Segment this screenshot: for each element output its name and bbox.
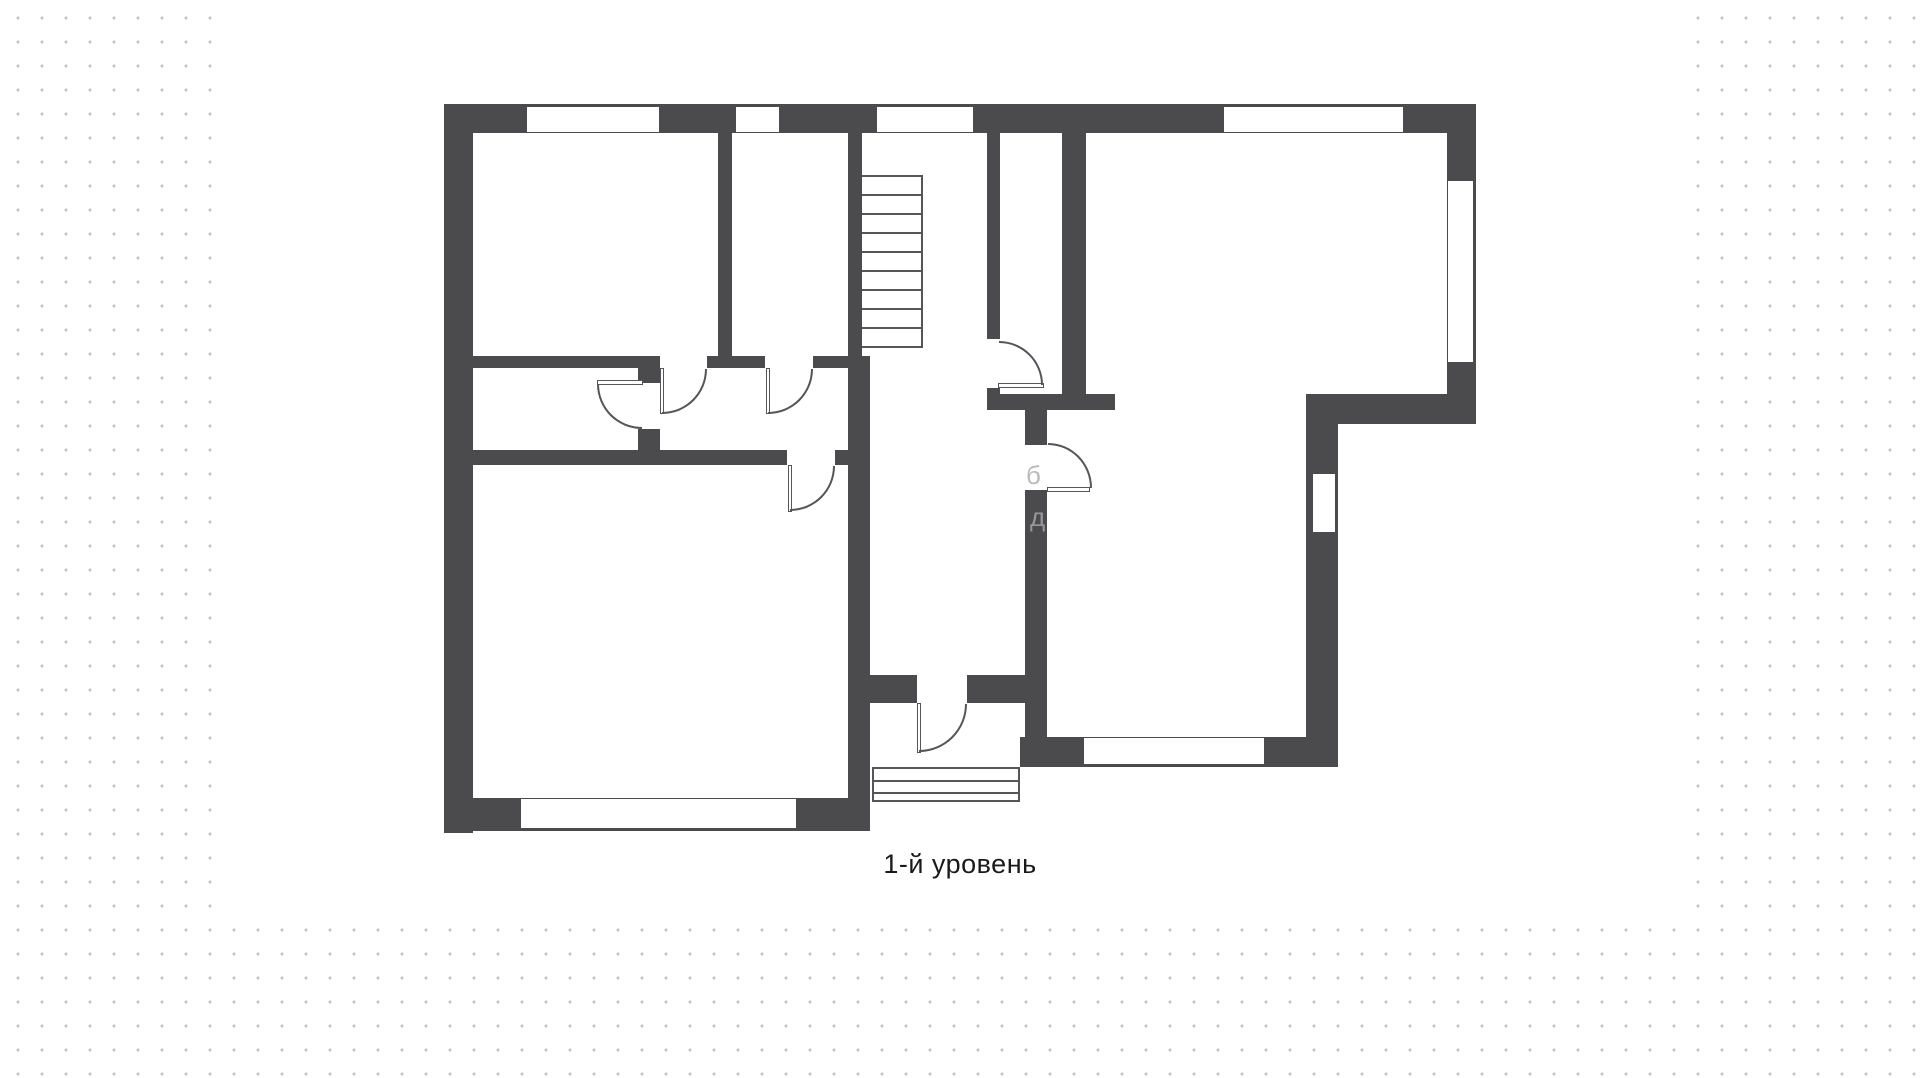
window <box>876 104 974 133</box>
wall <box>835 450 870 465</box>
wall <box>1062 133 1086 394</box>
window <box>520 798 797 831</box>
watermark-fragment: б <box>1026 462 1041 488</box>
stair-tread <box>862 270 923 272</box>
wall <box>870 675 917 703</box>
window <box>1083 737 1265 767</box>
door-swing-arc <box>919 704 967 752</box>
door-swing-arc <box>1048 443 1092 488</box>
stair-tread <box>862 251 923 253</box>
wall <box>848 133 862 356</box>
stair-tread <box>862 327 923 329</box>
entrance-step-line <box>874 780 1018 782</box>
window <box>526 104 660 133</box>
watermark-fragment: д <box>1030 504 1045 530</box>
wall <box>1025 410 1047 445</box>
wall <box>987 133 1000 339</box>
stair-tread <box>862 232 923 234</box>
wall <box>1306 394 1476 424</box>
wall <box>638 429 660 450</box>
stair-tread <box>862 194 923 196</box>
wall <box>718 133 732 356</box>
stair-stringer <box>921 175 923 348</box>
wall <box>473 356 638 368</box>
floor-caption: 1-й уровень <box>820 849 1100 880</box>
wall <box>638 356 660 383</box>
entrance-step-line <box>874 792 1018 794</box>
wall <box>848 356 870 798</box>
wall <box>444 104 473 833</box>
wall <box>987 394 1115 410</box>
wall <box>813 356 870 368</box>
wall <box>707 356 765 368</box>
wall <box>967 675 1025 703</box>
stair-tread <box>862 175 923 177</box>
window <box>1223 104 1404 133</box>
stair-tread <box>862 289 923 291</box>
window <box>1312 473 1338 533</box>
page: { "caption": { "text": "1-й уровень" }, … <box>0 0 1920 1078</box>
floor-plan: бд <box>0 0 1920 1078</box>
door-swing-arc <box>999 341 1043 385</box>
door-swing-arc <box>790 466 835 511</box>
door-swing-arc <box>597 384 642 429</box>
stair-tread <box>862 346 923 348</box>
entrance-steps <box>872 767 1020 802</box>
window <box>1447 180 1476 363</box>
window <box>735 104 780 133</box>
door-swing-arc <box>768 369 813 414</box>
door-swing-arc <box>662 369 707 414</box>
wall <box>473 450 787 465</box>
stair-tread <box>862 213 923 215</box>
stair-tread <box>862 308 923 310</box>
